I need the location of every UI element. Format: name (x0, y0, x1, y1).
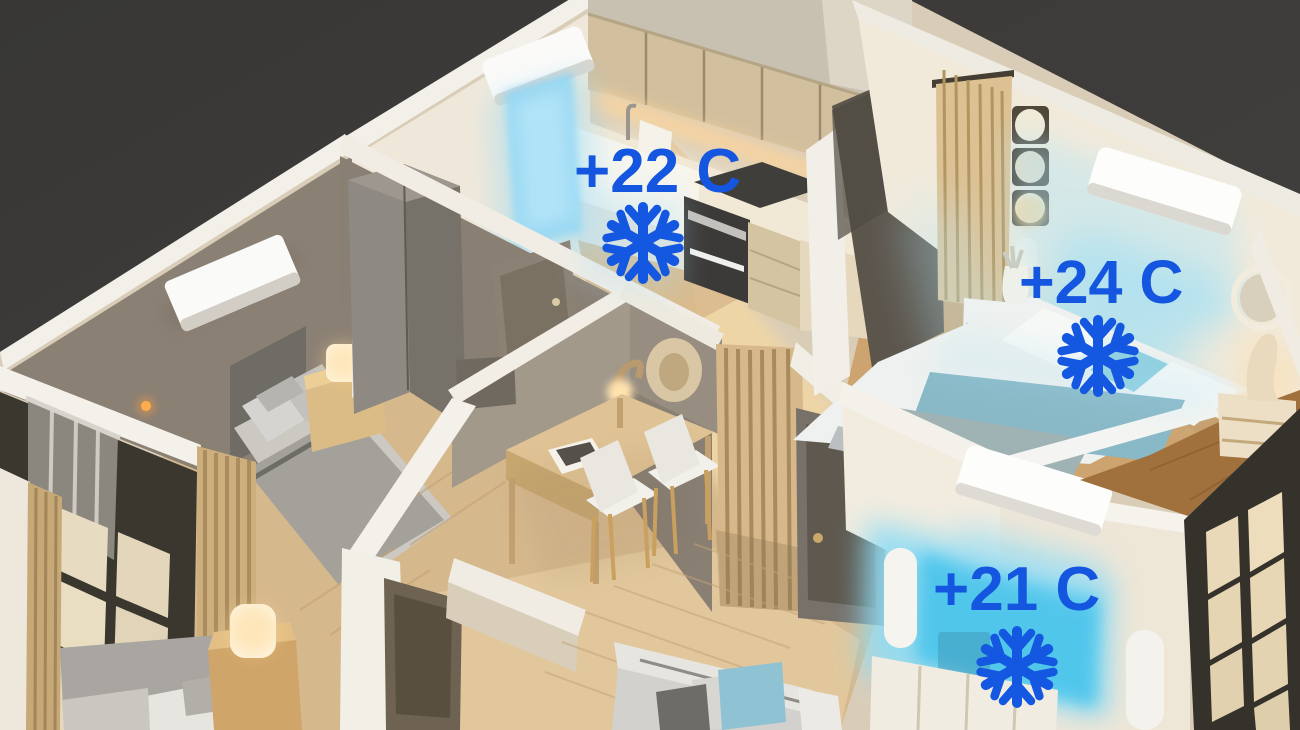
svg-text:+22 C: +22 C (574, 137, 741, 206)
svg-text:+21 C: +21 C (933, 555, 1100, 624)
svg-text:+24 C: +24 C (1019, 248, 1183, 316)
